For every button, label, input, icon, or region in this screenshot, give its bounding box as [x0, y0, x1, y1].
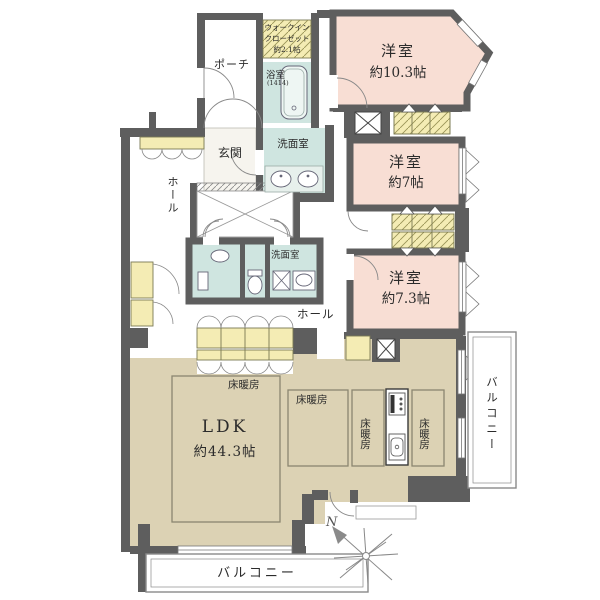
- toilet-icon: [248, 270, 262, 294]
- vanity-sink-icon: [293, 271, 315, 290]
- bedroom3-size-label: 約7.3帖: [350, 287, 462, 307]
- sink-icon: [298, 171, 318, 187]
- walk-in-closet-label: ウォークイン クローゼット 約2.1帖: [262, 23, 312, 56]
- balcony-bottom-label: バルコニー: [146, 562, 368, 581]
- ldk-size-label: 約44.3帖: [150, 440, 300, 460]
- entrance-label: 玄関: [204, 144, 256, 161]
- storage-room: [197, 191, 293, 237]
- porch-label: ポーチ: [206, 56, 258, 72]
- bedroom3-label: 洋室: [350, 267, 462, 288]
- wic-line3: 約2.1帖: [262, 45, 312, 56]
- bathroom-size-label: (1414): [267, 79, 289, 87]
- hand-basin-icon: [211, 250, 229, 262]
- compass-north-label: N: [326, 515, 337, 530]
- washroom-lower-label: 洗面室: [271, 247, 300, 261]
- wic-line2: クローゼット: [262, 34, 312, 45]
- cabinet-icon: [198, 272, 208, 290]
- hall-lower-label: ホール: [297, 306, 335, 322]
- sink-icon: [271, 171, 291, 187]
- balcony-right-label: バルコニー: [484, 376, 500, 454]
- bedroom1-label: 洋室: [333, 40, 463, 61]
- floor-heating-label-4: 床暖房: [417, 418, 432, 450]
- floor-plan: ウォークイン クローゼット 約2.1帖 浴室 (1414) ポーチ 玄関 洗面室…: [0, 0, 600, 600]
- ldk-label: LDK: [150, 417, 300, 437]
- floor-heating-label-2: 床暖房: [296, 392, 328, 407]
- washing-machine-icon: [273, 271, 290, 290]
- bedroom2-size-label: 約7帖: [350, 171, 462, 191]
- floor-heating-label-1: 床暖房: [228, 377, 260, 392]
- floor-heating-label-3: 床暖房: [358, 418, 373, 450]
- bedroom1-size-label: 約10.3帖: [333, 61, 463, 81]
- hall-upper-label: ホール: [164, 176, 180, 215]
- bedroom2-label: 洋室: [350, 151, 462, 172]
- wic-line1: ウォークイン: [262, 23, 312, 34]
- kitchen-island: [386, 389, 408, 465]
- washroom-upper-label: 洗面室: [262, 136, 324, 151]
- floorplan-drawing: [0, 0, 600, 600]
